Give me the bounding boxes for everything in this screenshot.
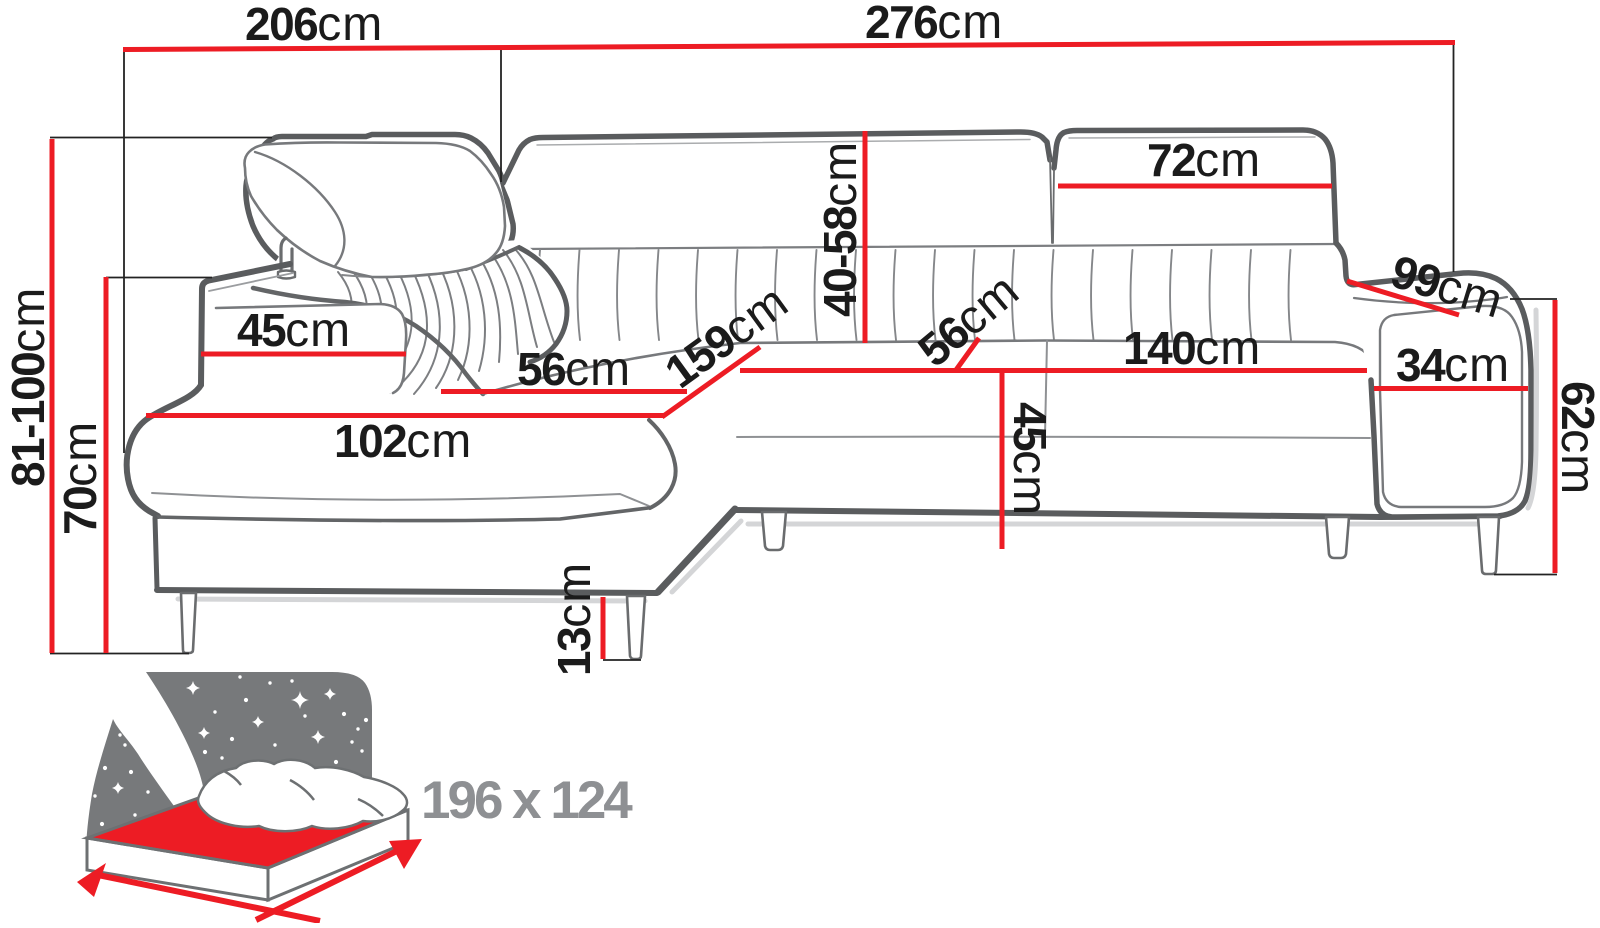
svg-text:140cm: 140cm	[1123, 322, 1261, 375]
svg-text:45cm: 45cm	[1003, 402, 1056, 516]
svg-text:56cm: 56cm	[517, 343, 631, 396]
svg-text:102cm: 102cm	[334, 415, 472, 468]
svg-text:72cm: 72cm	[1147, 134, 1261, 187]
svg-text:70cm: 70cm	[54, 421, 107, 535]
svg-text:276cm: 276cm	[865, 0, 1003, 49]
svg-text:40-58cm: 40-58cm	[814, 141, 867, 317]
svg-text:206cm: 206cm	[245, 0, 383, 51]
svg-text:34cm: 34cm	[1396, 339, 1510, 392]
svg-text:13cm: 13cm	[548, 562, 601, 676]
svg-text:81-100cm: 81-100cm	[2, 287, 55, 487]
svg-text:45cm: 45cm	[237, 304, 351, 357]
svg-text:196 x 124: 196 x 124	[421, 771, 633, 830]
svg-text:62cm: 62cm	[1551, 381, 1600, 495]
